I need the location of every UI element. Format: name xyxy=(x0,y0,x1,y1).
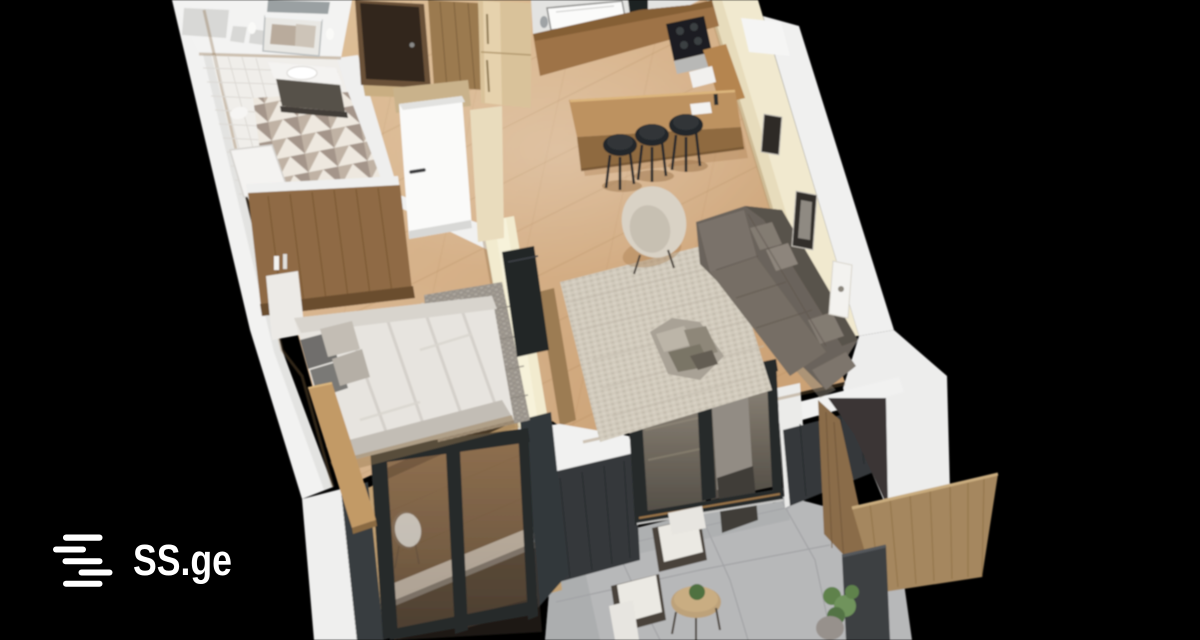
svg-text:SS.ge: SS.ge xyxy=(133,536,232,585)
